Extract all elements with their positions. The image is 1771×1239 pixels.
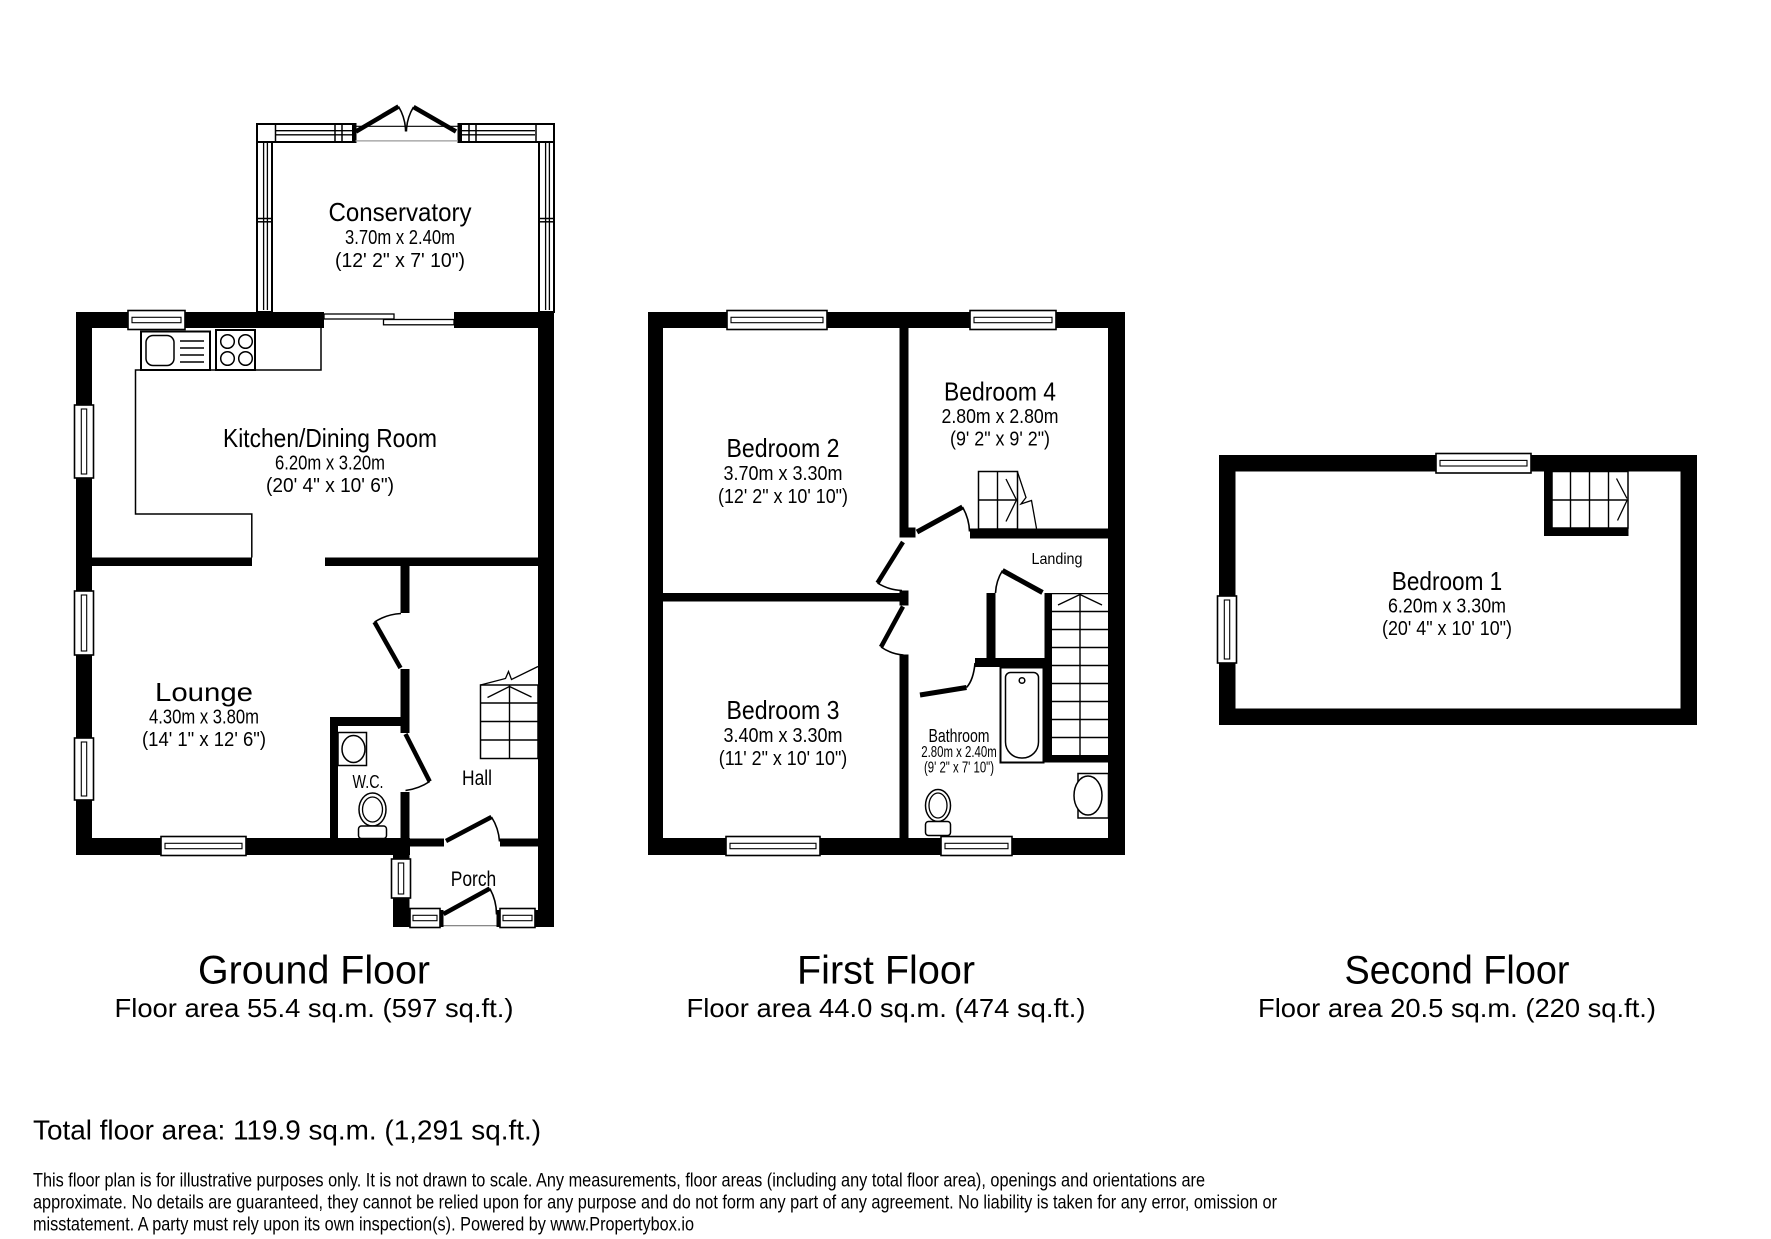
svg-text:(12' 2" x 10' 10"): (12' 2" x 10' 10") xyxy=(718,485,848,508)
svg-text:4.30m x 3.80m: 4.30m x 3.80m xyxy=(149,706,259,729)
svg-text:First Floor: First Floor xyxy=(797,949,975,993)
svg-text:Bathroom: Bathroom xyxy=(929,726,990,746)
svg-text:Bedroom 4: Bedroom 4 xyxy=(944,377,1056,407)
svg-text:Ground Floor: Ground Floor xyxy=(198,949,430,993)
svg-text:(12' 2" x 7' 10"): (12' 2" x 7' 10") xyxy=(335,249,465,272)
svg-text:Second Floor: Second Floor xyxy=(1345,949,1570,993)
svg-text:Floor area 55.4 sq.m. (597 sq.: Floor area 55.4 sq.m. (597 sq.ft.) xyxy=(115,993,514,1023)
svg-text:(14' 1" x 12' 6"): (14' 1" x 12' 6") xyxy=(142,728,266,751)
svg-text:6.20m x 3.20m: 6.20m x 3.20m xyxy=(275,452,385,475)
svg-text:3.70m x 2.40m: 3.70m x 2.40m xyxy=(345,226,455,249)
svg-text:Porch: Porch xyxy=(451,867,497,891)
svg-text:3.70m x 3.30m: 3.70m x 3.30m xyxy=(724,462,843,485)
svg-text:(20' 4" x 10' 6"): (20' 4" x 10' 6") xyxy=(266,474,394,497)
svg-text:approximate. No details are gu: approximate. No details are guaranteed, … xyxy=(33,1192,1277,1214)
svg-text:(9' 2" x 9' 2"): (9' 2" x 9' 2") xyxy=(950,428,1050,451)
svg-text:3.40m x 3.30m: 3.40m x 3.30m xyxy=(724,724,843,747)
svg-text:Total floor area: 119.9 sq.m.: Total floor area: 119.9 sq.m. (1,291 sq.… xyxy=(33,1115,541,1146)
svg-text:W.C.: W.C. xyxy=(353,772,384,792)
svg-text:Bedroom 1: Bedroom 1 xyxy=(1392,566,1503,596)
svg-text:Landing: Landing xyxy=(1032,551,1083,568)
svg-text:Floor area 20.5 sq.m. (220 sq.: Floor area 20.5 sq.m. (220 sq.ft.) xyxy=(1258,993,1656,1023)
svg-text:2.80m x 2.40m: 2.80m x 2.40m xyxy=(921,744,997,761)
svg-text:2.80m x 2.80m: 2.80m x 2.80m xyxy=(942,405,1059,428)
svg-text:This floor plan is for illustr: This floor plan is for illustrative purp… xyxy=(33,1170,1205,1192)
svg-text:Hall: Hall xyxy=(462,766,492,790)
svg-text:misstatement. A party must rel: misstatement. A party must rely upon its… xyxy=(33,1214,694,1236)
svg-text:Conservatory: Conservatory xyxy=(329,197,472,227)
svg-text:(9' 2" x 7' 10"): (9' 2" x 7' 10") xyxy=(924,760,994,777)
svg-text:6.20m x 3.30m: 6.20m x 3.30m xyxy=(1388,595,1506,618)
svg-text:Bedroom 3: Bedroom 3 xyxy=(727,695,840,725)
svg-text:Lounge: Lounge xyxy=(155,677,253,707)
svg-text:Floor area 44.0 sq.m. (474 sq.: Floor area 44.0 sq.m. (474 sq.ft.) xyxy=(687,993,1086,1023)
svg-text:Kitchen/Dining Room: Kitchen/Dining Room xyxy=(223,423,437,453)
svg-text:(11' 2" x 10' 10"): (11' 2" x 10' 10") xyxy=(719,747,848,770)
svg-text:(20' 4" x 10' 10"): (20' 4" x 10' 10") xyxy=(1382,617,1512,640)
svg-text:Bedroom 2: Bedroom 2 xyxy=(727,433,840,463)
